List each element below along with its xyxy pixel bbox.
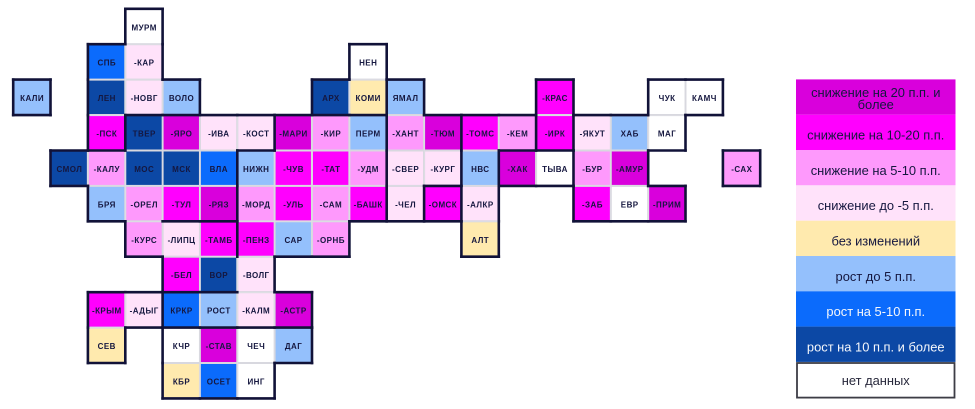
svg-text:-ТАТ: -ТАТ — [321, 165, 340, 174]
svg-text:-ЯРО: -ЯРО — [171, 130, 193, 139]
svg-text:-САХ: -САХ — [731, 165, 752, 174]
svg-text:МАГ: МАГ — [658, 130, 676, 139]
svg-text:-ЗАБ: -ЗАБ — [582, 200, 603, 209]
svg-text:-ХАК: -ХАК — [507, 165, 527, 174]
svg-text:-ЧУВ: -ЧУВ — [283, 165, 304, 174]
svg-text:-АМУР: -АМУР — [616, 165, 644, 174]
svg-text:САР: САР — [284, 236, 302, 245]
svg-text:-СВЕР: -СВЕР — [392, 165, 419, 174]
svg-text:-РЯЗ: -РЯЗ — [209, 200, 229, 209]
svg-text:-ПРИМ: -ПРИМ — [653, 200, 681, 209]
svg-text:-ТАМБ: -ТАМБ — [205, 236, 233, 245]
svg-text:-ТЮМ: -ТЮМ — [431, 130, 455, 139]
svg-text:-ВОЛГ: -ВОЛГ — [243, 271, 270, 280]
svg-text:-КРАС: -КРАС — [542, 94, 568, 103]
svg-text:ДАГ: ДАГ — [285, 342, 302, 351]
svg-text:-КИР: -КИР — [321, 130, 342, 139]
svg-text:-ЧЕЛ: -ЧЕЛ — [395, 200, 416, 209]
svg-text:рост на 5-10 п.п.: рост на 5-10 п.п. — [826, 304, 925, 319]
svg-text:-КАЛМ: -КАЛМ — [242, 307, 270, 316]
svg-text:-КЕМ: -КЕМ — [507, 130, 528, 139]
svg-text:АРХ: АРХ — [322, 94, 340, 103]
svg-text:КРКР: КРКР — [170, 307, 192, 316]
svg-text:-КУРС: -КУРС — [131, 236, 157, 245]
svg-text:-САМ: -САМ — [320, 200, 342, 209]
svg-text:ВОЛО: ВОЛО — [169, 94, 194, 103]
svg-text:-ПЕНЗ: -ПЕНЗ — [243, 236, 270, 245]
svg-text:-КУРГ: -КУРГ — [430, 165, 455, 174]
svg-text:ЧУК: ЧУК — [659, 94, 676, 103]
svg-text:нет данных: нет данных — [842, 373, 911, 388]
svg-text:МСК: МСК — [172, 165, 191, 174]
svg-text:НВС: НВС — [471, 165, 489, 174]
svg-text:ТВЕР: ТВЕР — [133, 130, 156, 139]
svg-text:-МОРД: -МОРД — [242, 200, 270, 209]
svg-text:-ИРК: -ИРК — [545, 130, 565, 139]
svg-text:-ХАНТ: -ХАНТ — [392, 130, 419, 139]
svg-text:НИЖН: НИЖН — [243, 165, 269, 174]
svg-text:ТЫВА: ТЫВА — [542, 165, 568, 174]
svg-text:ЕВР: ЕВР — [621, 200, 639, 209]
svg-text:ЛЕН: ЛЕН — [98, 94, 116, 103]
svg-text:-АЛКР: -АЛКР — [467, 200, 494, 209]
svg-text:-ОРЕЛ: -ОРЕЛ — [130, 200, 157, 209]
svg-text:снижение до -5 п.п.: снижение до -5 п.п. — [818, 198, 934, 213]
svg-text:СПБ: СПБ — [97, 59, 116, 68]
svg-text:-ОРНБ: -ОРНБ — [317, 236, 345, 245]
svg-text:МОС: МОС — [134, 165, 154, 174]
svg-text:-ТОМС: -ТОМС — [466, 130, 494, 139]
svg-text:-БАШК: -БАШК — [354, 200, 383, 209]
svg-text:ПЕРМ: ПЕРМ — [356, 130, 381, 139]
svg-text:-НОВГ: -НОВГ — [131, 94, 158, 103]
svg-text:-ЯКУТ: -ЯКУТ — [580, 130, 606, 139]
svg-text:ОСЕТ: ОСЕТ — [207, 378, 231, 387]
svg-text:ЧЕЧ: ЧЕЧ — [247, 342, 265, 351]
svg-text:СМОЛ: СМОЛ — [57, 165, 83, 174]
svg-text:-ПСК: -ПСК — [96, 130, 117, 139]
svg-text:-КАЛУ: -КАЛУ — [94, 165, 121, 174]
svg-text:ИНГ: ИНГ — [247, 378, 264, 387]
svg-text:МУРМ: МУРМ — [132, 23, 157, 32]
svg-text:КАМЧ: КАМЧ — [692, 94, 717, 103]
svg-text:рост на 10 п.п. и более: рост на 10 п.п. и более — [807, 339, 945, 354]
svg-text:ХАБ: ХАБ — [621, 130, 639, 139]
svg-text:-КОСТ: -КОСТ — [243, 130, 269, 139]
svg-text:снижение на 5-10 п.п.: снижение на 5-10 п.п. — [811, 163, 941, 178]
svg-text:-АСТР: -АСТР — [280, 307, 307, 316]
svg-text:рост до 5 п.п.: рост до 5 п.п. — [836, 269, 916, 284]
svg-text:БРЯ: БРЯ — [98, 200, 116, 209]
svg-text:-КРЫМ: -КРЫМ — [92, 307, 122, 316]
svg-text:-ОМСК: -ОМСК — [429, 200, 457, 209]
svg-text:-ИВА: -ИВА — [208, 130, 229, 139]
svg-text:-УЛЬ: -УЛЬ — [283, 200, 304, 209]
svg-text:ЯМАЛ: ЯМАЛ — [393, 94, 419, 103]
svg-text:-АДЫГ: -АДЫГ — [130, 307, 159, 316]
svg-text:снижение на 10-20 п.п.: снижение на 10-20 п.п. — [807, 128, 944, 143]
svg-text:-БЕЛ: -БЕЛ — [171, 271, 192, 280]
svg-text:НЕН: НЕН — [359, 59, 377, 68]
svg-text:КБР: КБР — [173, 378, 191, 387]
svg-text:КОМИ: КОМИ — [356, 94, 381, 103]
svg-text:-ТУЛ: -ТУЛ — [172, 200, 192, 209]
svg-text:-КАР: -КАР — [134, 59, 155, 68]
svg-text:-УДМ: -УДМ — [357, 165, 378, 174]
svg-text:ВЛА: ВЛА — [210, 165, 228, 174]
svg-text:-БУР: -БУР — [582, 165, 603, 174]
svg-text:ВОР: ВОР — [210, 271, 229, 280]
svg-text:без изменений: без изменений — [831, 234, 920, 249]
svg-text:СЕВ: СЕВ — [98, 342, 116, 351]
svg-text:-МАРИ: -МАРИ — [279, 130, 307, 139]
svg-text:РОСТ: РОСТ — [207, 307, 231, 316]
svg-text:АЛТ: АЛТ — [471, 236, 489, 245]
svg-text:более: более — [858, 97, 894, 112]
svg-text:КЧР: КЧР — [173, 342, 191, 351]
svg-text:КАЛИ: КАЛИ — [20, 94, 44, 103]
svg-text:-ЛИПЦ: -ЛИПЦ — [168, 236, 196, 245]
svg-text:-СТАВ: -СТАВ — [206, 342, 232, 351]
